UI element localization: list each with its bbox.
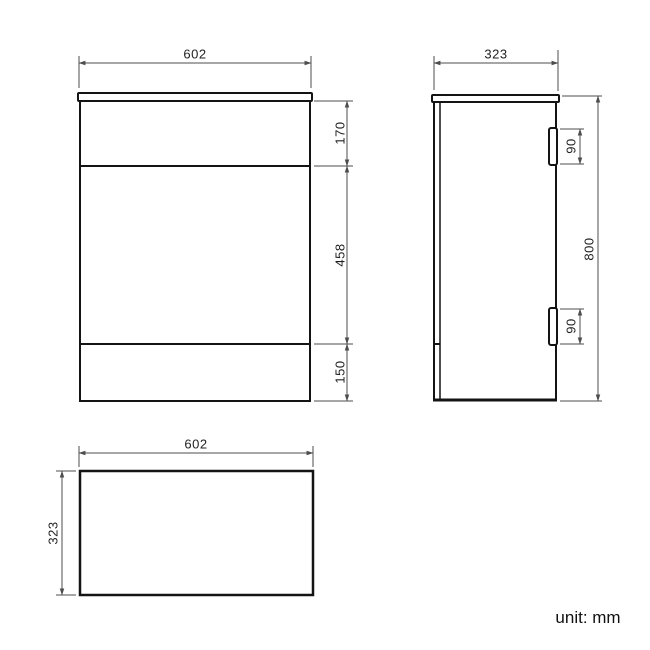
front-view [78, 93, 312, 401]
bottom-hinge-dimension: 90 [565, 318, 578, 333]
technical-drawing-canvas: 602 170 458 150 323 90 90 800 602 323 un… [0, 0, 650, 650]
plan-width-dimension: 602 [184, 438, 207, 451]
top-hinge-dimension: 90 [565, 138, 578, 153]
front-middle-section-dimension: 458 [334, 243, 347, 266]
front-top-section-dimension: 170 [334, 121, 347, 144]
front-bottom-section-dimension: 150 [334, 360, 347, 383]
side-depth-dimension: 323 [484, 48, 507, 61]
top-hinge [549, 128, 557, 165]
drawing-lines [0, 0, 650, 650]
top-view [80, 471, 313, 595]
unit-note: unit: mm [555, 608, 620, 628]
front-width-dimension: 602 [183, 48, 206, 61]
plan-depth-dimension: 323 [47, 521, 60, 544]
bottom-hinge [549, 308, 557, 345]
overall-height-dimension: 800 [583, 237, 596, 260]
side-view [432, 95, 559, 400]
